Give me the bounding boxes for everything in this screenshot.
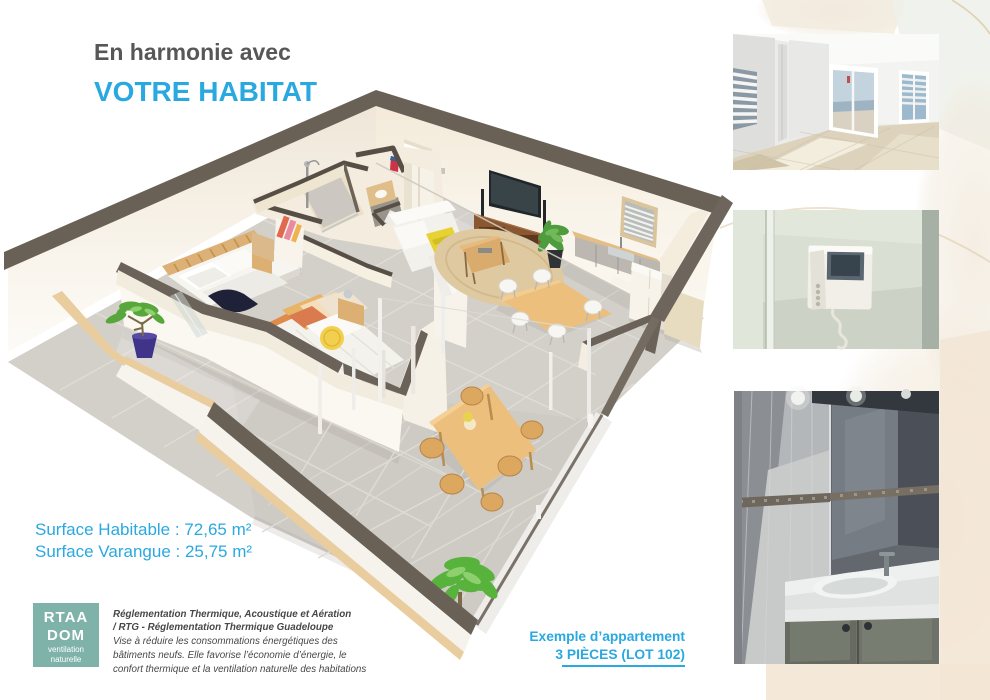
- svg-text:Surface Habitable : 72,65 m²: Surface Habitable : 72,65 m²: [35, 520, 252, 539]
- svg-text:Surface Varangue : 25,75 m²: Surface Varangue : 25,75 m²: [35, 542, 252, 561]
- svg-text:3 PIÈCES (LOT 102): 3 PIÈCES (LOT 102): [555, 646, 685, 662]
- svg-text:ventilation: ventilation: [48, 645, 84, 654]
- svg-text:RTAA: RTAA: [44, 609, 89, 626]
- svg-text:Vise à réduire les consommatio: Vise à réduire les consommations énergét…: [113, 636, 338, 647]
- svg-text:En harmonie avec: En harmonie avec: [94, 39, 291, 65]
- svg-text:DOM: DOM: [47, 627, 85, 644]
- svg-text:/ RTG - Réglementation Thermiq: / RTG - Réglementation Thermique Guadelo…: [112, 622, 334, 633]
- svg-text:Exemple d’appartement: Exemple d’appartement: [529, 629, 685, 644]
- svg-text:Réglementation Thermique, Acou: Réglementation Thermique, Acoustique et …: [113, 609, 351, 620]
- svg-text:confort thermique et la ventil: confort thermique et la ventilation natu…: [113, 664, 366, 675]
- svg-text:naturelle: naturelle: [51, 655, 82, 664]
- svg-text:VOTRE HABITAT: VOTRE HABITAT: [94, 76, 317, 107]
- svg-text:bâtiments neufs. Elle favorise: bâtiments neufs. Elle favorise l’économi…: [113, 650, 347, 661]
